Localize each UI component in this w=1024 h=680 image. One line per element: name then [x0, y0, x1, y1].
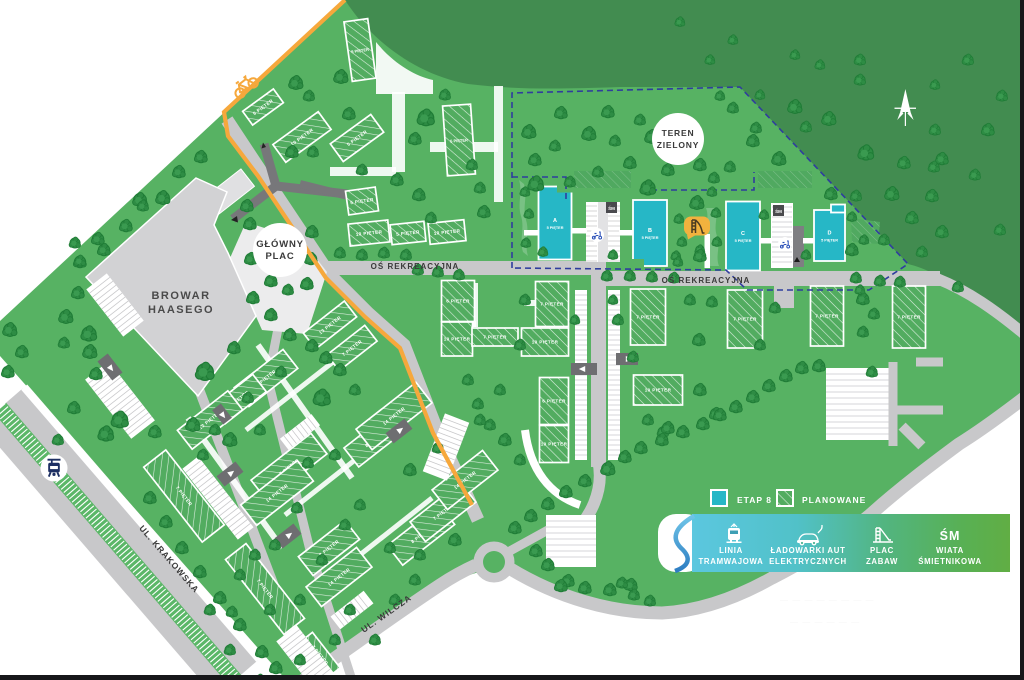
svg-text:ŚMIETNIKOWA: ŚMIETNIKOWA	[918, 557, 982, 566]
svg-text:— — — — — — — —: — — — — — — — —	[780, 596, 875, 605]
svg-text:7 PIĘTER: 7 PIĘTER	[897, 315, 921, 320]
svg-text:OŚ REKREACYJNA: OŚ REKREACYJNA	[662, 276, 751, 285]
svg-text:D: D	[828, 231, 832, 237]
svg-text:ELEKTRYCZNYCH: ELEKTRYCZNYCH	[769, 557, 847, 566]
svg-text:5 PIĘTER: 5 PIĘTER	[735, 239, 752, 243]
svg-text:ŚM: ŚM	[775, 208, 782, 214]
svg-text:BROWAR: BROWAR	[151, 290, 210, 302]
svg-text:6 PIĘTER: 6 PIĘTER	[446, 299, 470, 304]
svg-text:PLAC: PLAC	[265, 251, 294, 262]
svg-text:7 PIĘTER: 7 PIĘTER	[540, 302, 564, 307]
svg-text:— — — — — —: — — — — — —	[790, 618, 860, 627]
svg-text:7 PIĘTER: 7 PIĘTER	[636, 315, 660, 320]
svg-text:ETAP 8: ETAP 8	[737, 495, 772, 505]
svg-text:TEREN: TEREN	[662, 128, 695, 138]
svg-text:5 PIĘTER: 5 PIĘTER	[547, 226, 564, 230]
svg-text:7 PIĘTER: 7 PIĘTER	[733, 317, 757, 322]
svg-text:5 PIĘTER: 5 PIĘTER	[642, 236, 659, 240]
svg-text:5 PIĘTER: 5 PIĘTER	[821, 239, 838, 243]
svg-text:ZIELONY: ZIELONY	[657, 140, 699, 150]
svg-text:7 PIĘTER: 7 PIĘTER	[815, 314, 839, 319]
svg-text:B: B	[648, 228, 652, 234]
svg-text:6 PIĘTER: 6 PIĘTER	[542, 399, 566, 404]
svg-text:ZABAW: ZABAW	[866, 557, 898, 566]
svg-text:HAASEGO: HAASEGO	[148, 304, 214, 316]
svg-text:GŁÓWNY: GŁÓWNY	[256, 238, 304, 250]
svg-text:WIATA: WIATA	[936, 546, 964, 555]
svg-text:ŁADOWARKI AUT: ŁADOWARKI AUT	[770, 546, 845, 555]
svg-text:10 PIĘTER: 10 PIĘTER	[645, 388, 672, 393]
svg-text:OŚ REKREACYJNA: OŚ REKREACYJNA	[371, 262, 460, 271]
svg-text:10 PIĘTER: 10 PIĘTER	[444, 337, 471, 342]
svg-text:7 PIĘTER: 7 PIĘTER	[483, 335, 507, 340]
svg-text:TRAMWAJOWA: TRAMWAJOWA	[698, 557, 763, 566]
svg-text:PLANOWANE: PLANOWANE	[802, 495, 866, 505]
svg-text:10 PIĘTER: 10 PIĘTER	[541, 442, 568, 447]
svg-text:C: C	[741, 231, 745, 237]
svg-text:10 PIĘTER: 10 PIĘTER	[532, 340, 559, 345]
svg-text:ŚM: ŚM	[608, 205, 615, 211]
svg-text:ŚM: ŚM	[940, 528, 961, 543]
svg-text:LINIA: LINIA	[719, 546, 743, 555]
svg-text:PLAC: PLAC	[870, 546, 894, 555]
svg-text:A: A	[553, 218, 557, 224]
